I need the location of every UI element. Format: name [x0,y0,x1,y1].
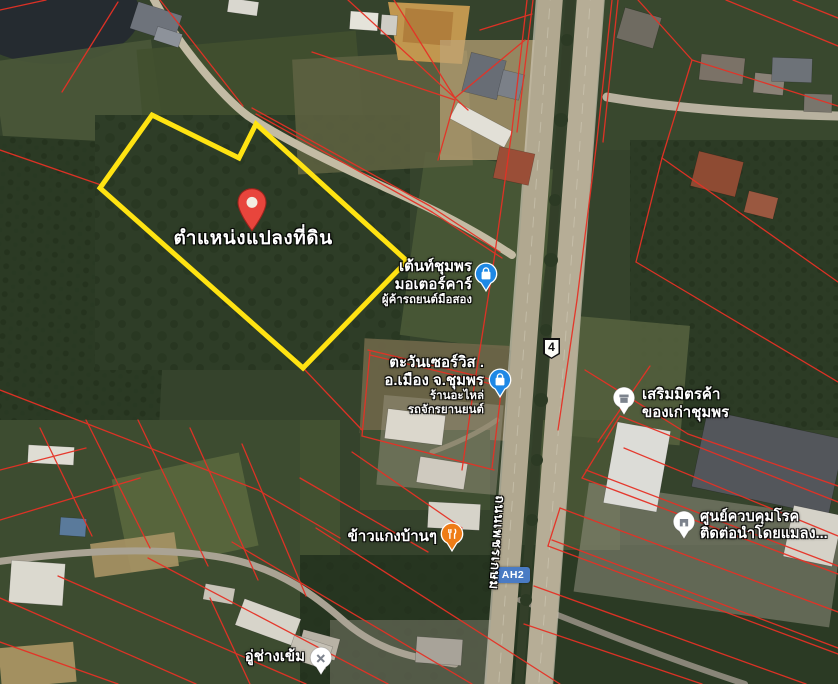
store-icon [612,386,636,416]
map-pin-icon [236,187,268,233]
wrench-icon [309,646,333,676]
building-icon [672,510,696,540]
plot-location-pin[interactable] [236,187,268,233]
poi-disease-control-label: ศูนย์ควบคุมโรค ติดต่อนำโดยแมลง... [700,509,828,544]
poi-restaurant-label: ข้าวแกงบ้านๆ [348,528,437,546]
plot-pin-label: ตำแหน่งแปลงที่ดิน [173,228,332,251]
poi-car-tent-label: เต้นท์ชุมพร มอเตอร์คาร์ ผู้ค้ารถยนต์มือส… [382,258,472,308]
shopping-bag-icon [474,262,498,292]
satellite-imagery [0,0,838,684]
satellite-map-canvas[interactable]: ตำแหน่งแปลงที่ดิน เต้นท์ชุมพร มอเตอร์คาร… [0,0,838,684]
poi-antique-store-label: เสริมมิตรค้า ของเก่าชุมพร [642,386,729,422]
restaurant-icon [440,522,464,552]
terrain-layer [0,0,838,684]
shopping-bag-icon [488,368,512,398]
poi-tawan-service-label: ตะวันเซอร์วิส . อ.เมือง จ.ชุมพร ร้านอะไห… [384,354,484,418]
poi-garage-label: อู่ช่างเข้ม [245,648,305,666]
